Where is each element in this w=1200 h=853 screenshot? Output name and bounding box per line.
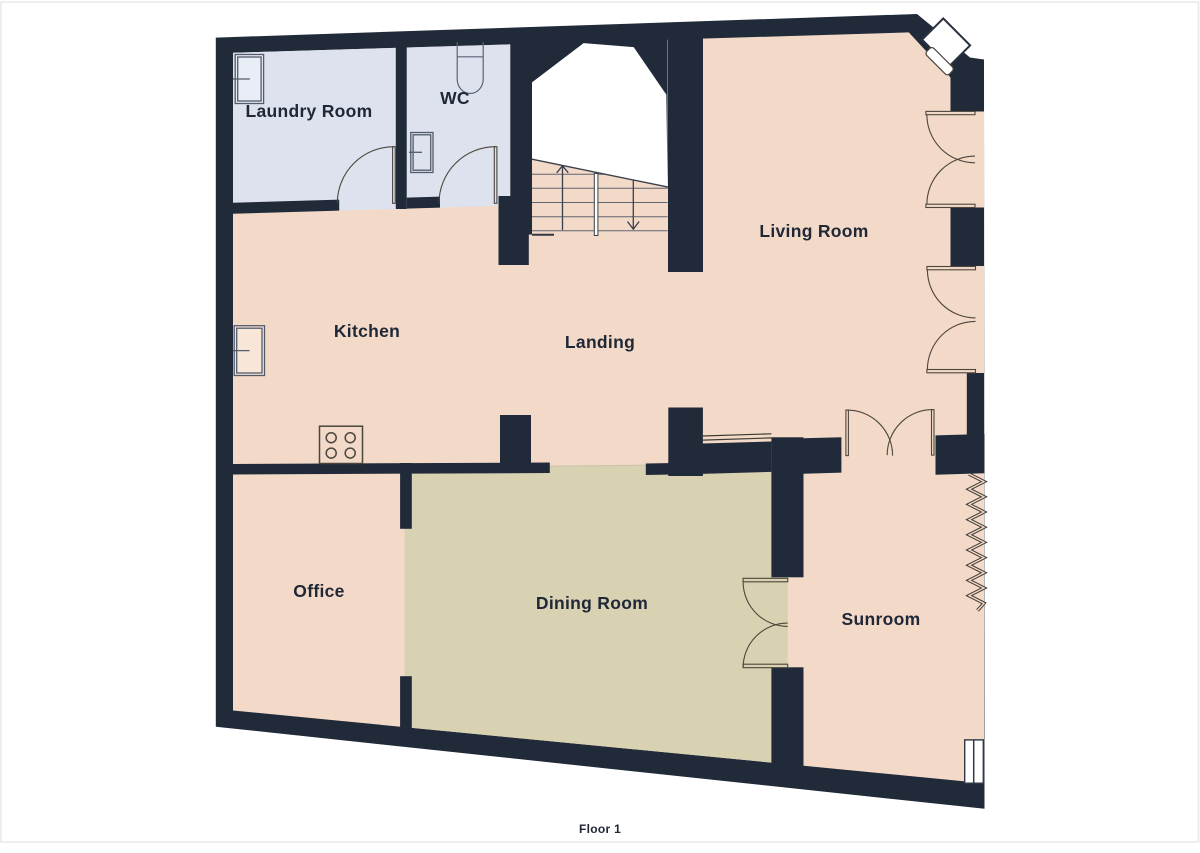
- svg-text:Living Room: Living Room: [759, 221, 868, 241]
- svg-text:Floor 1: Floor 1: [579, 822, 621, 836]
- svg-text:WC: WC: [440, 88, 470, 108]
- svg-text:Laundry Room: Laundry Room: [245, 101, 372, 121]
- svg-text:Landing: Landing: [565, 332, 635, 352]
- svg-text:Office: Office: [293, 581, 344, 601]
- svg-text:Dining Room: Dining Room: [536, 593, 648, 613]
- svg-text:Kitchen: Kitchen: [334, 321, 400, 341]
- svg-text:Sunroom: Sunroom: [842, 609, 921, 629]
